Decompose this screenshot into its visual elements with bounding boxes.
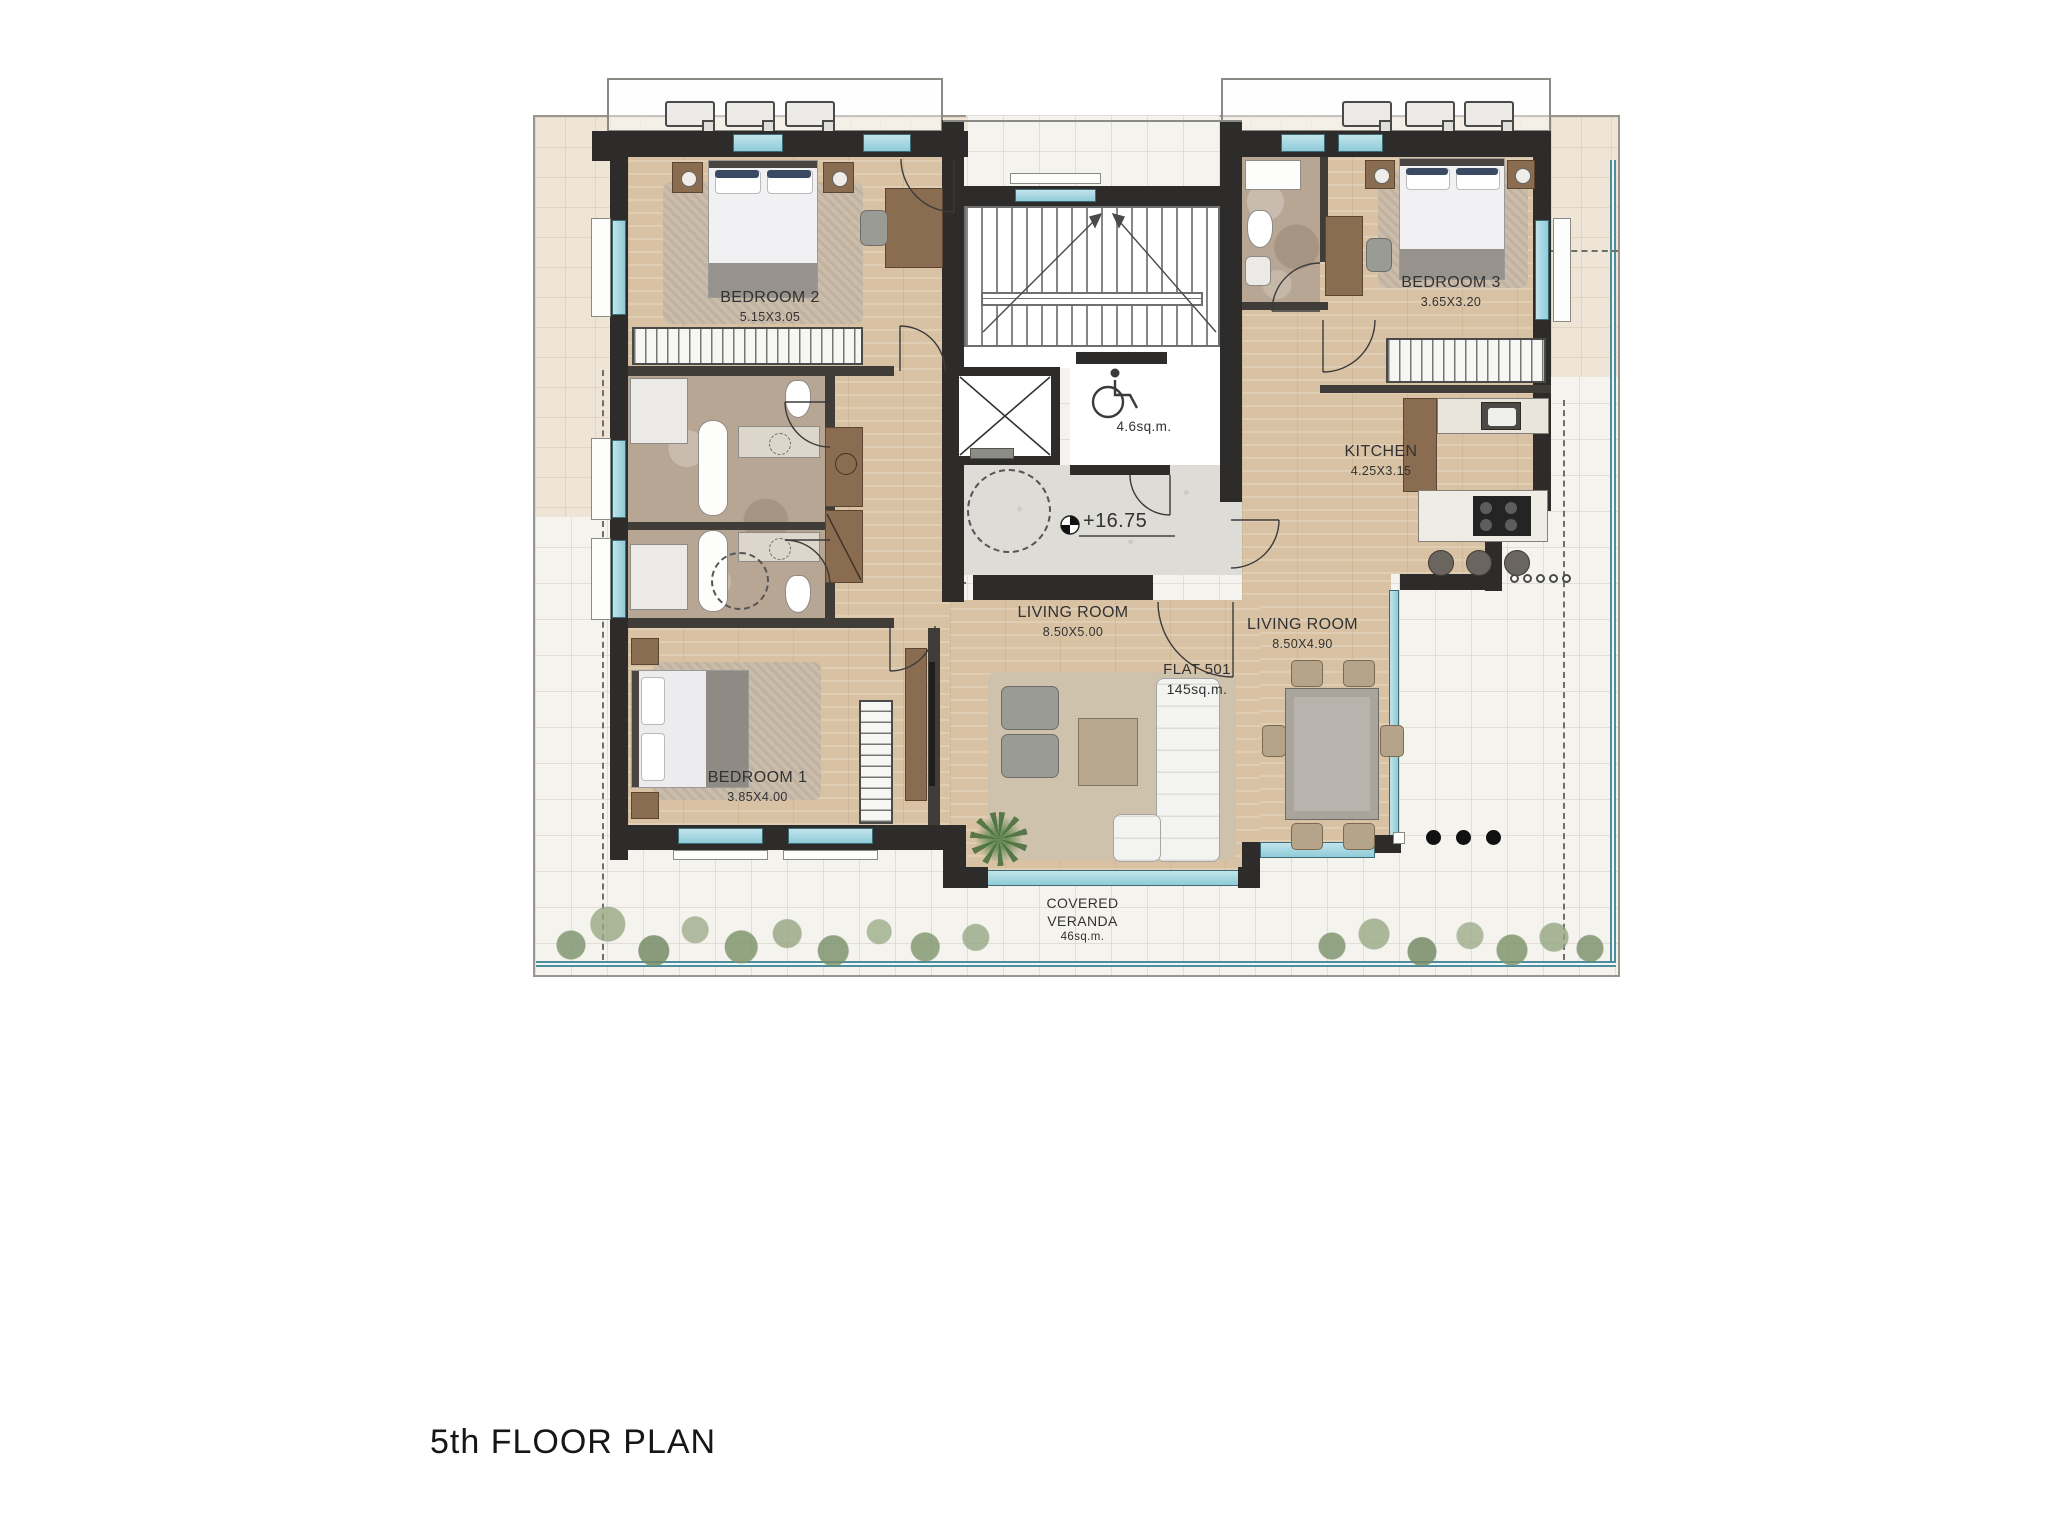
wall-bedroom2-bath bbox=[628, 366, 894, 376]
ac-unit-icon bbox=[665, 101, 715, 127]
living-right-label: LIVING ROOM 8.50X4.90 bbox=[1235, 615, 1370, 652]
veranda-slider-living bbox=[966, 870, 1260, 886]
sill-bedroom3-right bbox=[1553, 218, 1571, 322]
room-dims: 8.50X4.90 bbox=[1235, 636, 1370, 652]
bathA-tub bbox=[698, 420, 728, 516]
window-bedroom3-right bbox=[1535, 220, 1549, 320]
window-bedroom1-bottom1 bbox=[678, 828, 763, 844]
level-label: +16.75 bbox=[1083, 508, 1183, 534]
bedroom2-nightstand-left bbox=[672, 162, 703, 193]
stair-landing bbox=[981, 292, 1203, 306]
room-dims: 4.25X3.15 bbox=[1321, 463, 1441, 479]
window-right-wing-top1 bbox=[1281, 134, 1325, 152]
wall-bath-divider bbox=[628, 522, 825, 530]
room-name: BEDROOM 3 bbox=[1381, 273, 1521, 294]
window-right-wing-top2 bbox=[1338, 134, 1383, 152]
veranda-line2: VERANDA bbox=[1010, 912, 1155, 930]
staircase bbox=[964, 206, 1220, 347]
terrace-dot bbox=[1426, 830, 1441, 845]
veranda-area: 46sq.m. bbox=[1010, 930, 1155, 945]
bathA-vanity bbox=[738, 426, 820, 458]
living-sofa bbox=[1156, 678, 1220, 862]
bathA-shower bbox=[630, 378, 688, 444]
dining-chair bbox=[1343, 823, 1375, 850]
room-name: BEDROOM 2 bbox=[680, 288, 860, 309]
bedroom2-label: BEDROOM 2 5.15X3.05 bbox=[680, 288, 860, 325]
setback-dashed-right bbox=[1563, 400, 1565, 960]
lobby-dashed-circle bbox=[967, 469, 1051, 553]
bedroom3-wardrobe bbox=[1386, 338, 1546, 383]
window-left-bedroom2 bbox=[612, 220, 626, 315]
kitchen-sink bbox=[1481, 402, 1521, 430]
bedroom3-nightstand-right bbox=[1507, 160, 1535, 189]
veranda-label: COVERED VERANDA 46sq.m. bbox=[1010, 894, 1155, 945]
dining-chair bbox=[1262, 725, 1286, 757]
dining-table bbox=[1285, 688, 1379, 820]
room-name: KITCHEN bbox=[1321, 442, 1441, 463]
ac-unit-icon bbox=[1342, 101, 1392, 127]
room-dims: 5.15X3.05 bbox=[680, 309, 860, 325]
bathR-toilet bbox=[1247, 210, 1273, 248]
sill-bedroom1-bottom2 bbox=[783, 850, 878, 860]
flat-area: 145sq.m. bbox=[1141, 680, 1253, 698]
tv-screen bbox=[929, 662, 935, 786]
bathB-toilet bbox=[785, 575, 811, 613]
kitchen-label: KITCHEN 4.25X3.15 bbox=[1321, 442, 1441, 479]
bedroom1-wardrobe bbox=[859, 700, 893, 824]
veranda-line1: COVERED bbox=[1010, 894, 1155, 912]
terrace-edge-right bbox=[1610, 160, 1616, 961]
bedroom1-nightstand-bottom bbox=[631, 792, 659, 819]
elevator-door-step bbox=[970, 448, 1014, 459]
wall-kitchen-bottom bbox=[1400, 574, 1502, 590]
bedroom3-nightstand-left bbox=[1365, 160, 1395, 189]
floor-plan-page: { "page": { "title": "5th FLOOR PLAN" },… bbox=[0, 0, 2048, 1536]
dining-window-wall bbox=[1389, 590, 1399, 842]
wall-bathroomR-bottom bbox=[1242, 302, 1328, 310]
kitchen-stool bbox=[1428, 550, 1454, 576]
room-name: LIVING ROOM bbox=[1235, 615, 1370, 636]
sill-stair-top bbox=[1010, 173, 1101, 184]
living-sofa-chaise bbox=[1113, 814, 1161, 862]
wall-bedroom3-bottom bbox=[1320, 385, 1551, 393]
bedroom3-chair bbox=[1366, 238, 1392, 272]
wall-lobby-bottom bbox=[973, 575, 1153, 600]
room-name: BEDROOM 1 bbox=[675, 768, 840, 789]
dining-chair bbox=[1343, 660, 1375, 687]
post-slider-step bbox=[1242, 842, 1260, 888]
bathB-shower bbox=[630, 544, 688, 610]
room-name: LIVING ROOM bbox=[988, 603, 1158, 624]
window-stair-top bbox=[1015, 189, 1096, 202]
kitchen-stove bbox=[1473, 496, 1531, 536]
tv-console bbox=[905, 648, 927, 801]
window-left-bathB bbox=[612, 540, 626, 618]
terrace-circle bbox=[1549, 574, 1558, 583]
bathA-toilet bbox=[785, 380, 811, 418]
lobby-area: 4.6sq.m. bbox=[1089, 418, 1199, 436]
room-dims: 8.50X5.00 bbox=[988, 624, 1158, 640]
level-value: +16.75 bbox=[1083, 508, 1183, 534]
plants-bottom-left bbox=[548, 888, 1008, 983]
wall-wc-bottom bbox=[1070, 465, 1170, 475]
bathR-sink bbox=[1245, 256, 1271, 286]
bedroom2-desk bbox=[885, 188, 943, 268]
window-bedroom2-top bbox=[863, 134, 911, 152]
living-center-label: LIVING ROOM 8.50X5.00 bbox=[988, 603, 1158, 640]
bedroom1-nightstand-top bbox=[631, 638, 659, 665]
bedroom2-nightstand-right bbox=[823, 162, 854, 193]
wall-bath-bedroom1 bbox=[628, 618, 894, 628]
terrace-circle bbox=[1536, 574, 1545, 583]
terrace-dot bbox=[1486, 830, 1501, 845]
ac-unit-icon bbox=[1464, 101, 1514, 127]
terrace-dot bbox=[1456, 830, 1471, 845]
wall-under-stair bbox=[1076, 352, 1167, 364]
hall-closet-top bbox=[825, 427, 863, 507]
ac-unit-icon bbox=[1405, 101, 1455, 127]
sill-bedroom1-bottom1 bbox=[673, 850, 768, 860]
window-left-bathA bbox=[612, 440, 626, 518]
page-title: 5th FLOOR PLAN bbox=[430, 1423, 716, 1462]
kitchen-stool bbox=[1504, 550, 1530, 576]
wall-stair-core-right bbox=[1220, 120, 1242, 502]
wall-left-wing-top bbox=[610, 131, 968, 157]
bathB-shower-circle bbox=[711, 552, 769, 610]
plant-palm-icon bbox=[970, 812, 1028, 866]
floor-plan-drawing: BEDROOM 2 5.15X3.05 BEDROOM 3 3.65X3.20 … bbox=[533, 70, 1623, 985]
sill-left-bathB bbox=[591, 538, 611, 620]
bedroom1-label: BEDROOM 1 3.85X4.00 bbox=[675, 768, 840, 805]
bedroom3-bed bbox=[1399, 158, 1505, 280]
plants-bottom-right bbox=[1308, 902, 1608, 982]
wall-right-wing-top bbox=[1221, 131, 1551, 157]
dining-corner-cap bbox=[1393, 832, 1405, 844]
bedroom3-label: BEDROOM 3 3.65X3.20 bbox=[1381, 273, 1521, 310]
ac-unit-icon bbox=[725, 101, 775, 127]
room-dims: 3.85X4.00 bbox=[675, 789, 840, 805]
room-dims: 3.65X3.20 bbox=[1381, 294, 1521, 310]
bedroom2-wardrobe bbox=[632, 327, 863, 365]
sill-left-bedroom2 bbox=[591, 218, 611, 317]
bedroom3-dresser bbox=[1325, 216, 1363, 296]
wc-floor bbox=[1070, 364, 1220, 465]
window-bedroom2-top2 bbox=[733, 134, 783, 152]
terrace-circle bbox=[1523, 574, 1532, 583]
window-bedroom1-bottom2 bbox=[788, 828, 873, 844]
hall-closet-bottom bbox=[825, 510, 863, 583]
bedroom2-bed bbox=[708, 160, 818, 298]
living-coffee-table bbox=[1078, 718, 1138, 786]
wall-corner-stub bbox=[592, 131, 610, 161]
flat-label: FLAT 501 145sq.m. bbox=[1141, 660, 1253, 698]
living-armchair-1 bbox=[1001, 686, 1059, 730]
wall-right-exterior bbox=[1533, 131, 1551, 511]
stair-lobby-area-label: 4.6sq.m. bbox=[1089, 418, 1199, 436]
dining-chair bbox=[1380, 725, 1404, 757]
roof-outline-left-wing bbox=[607, 78, 943, 132]
wall-veranda-corner-left bbox=[943, 825, 966, 888]
kitchen-stool bbox=[1466, 550, 1492, 576]
wall-bedroom1-bottom bbox=[610, 825, 950, 850]
sill-left-bathA bbox=[591, 438, 611, 520]
roof-line-core bbox=[943, 120, 1242, 122]
flat-name: FLAT 501 bbox=[1141, 660, 1253, 680]
dining-chair bbox=[1291, 660, 1323, 687]
bathR-counter bbox=[1245, 160, 1301, 190]
post-slider-left bbox=[966, 867, 988, 888]
ac-unit-icon bbox=[785, 101, 835, 127]
bedroom2-desk-chair bbox=[860, 210, 888, 246]
terrace-circle bbox=[1510, 574, 1519, 583]
terrace-circle bbox=[1562, 574, 1571, 583]
living-armchair-2 bbox=[1001, 734, 1059, 778]
dining-chair bbox=[1291, 823, 1323, 850]
